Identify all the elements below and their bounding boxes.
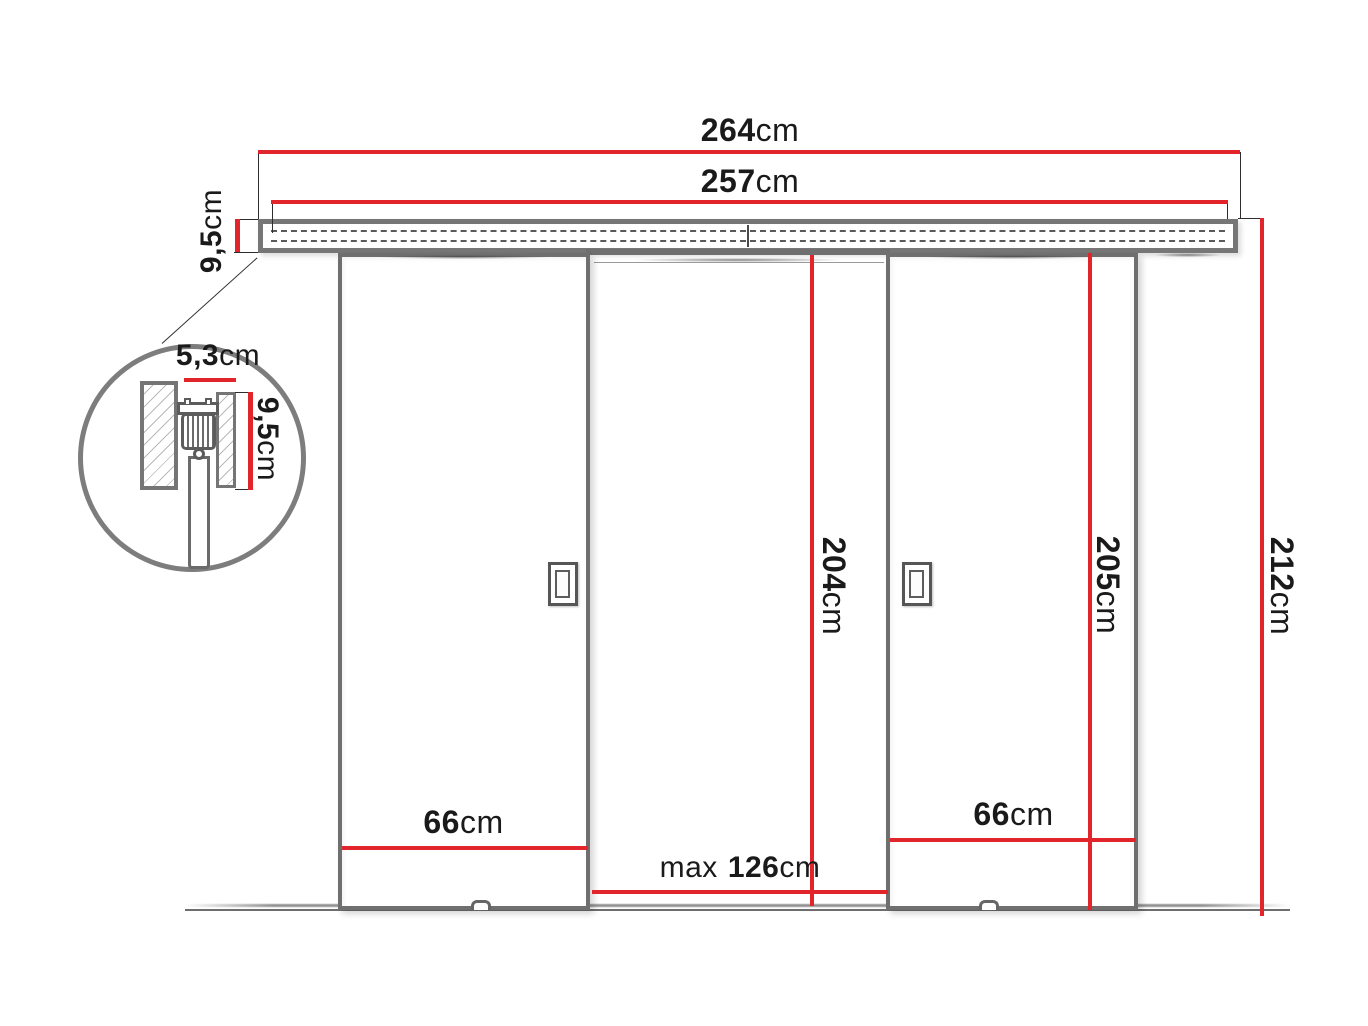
rail-shadow-left-door xyxy=(342,254,585,260)
rail-length-unit: cm xyxy=(756,163,800,199)
extension-line-rail-length-right xyxy=(1227,203,1228,219)
door-height-value: 205 xyxy=(1090,536,1126,591)
total-height-value: 212 xyxy=(1264,537,1300,592)
rail-shadow-right-door xyxy=(890,254,1132,260)
extension-line-detail-height-top xyxy=(235,392,248,393)
dimension-label-rail-height: 9,5cm xyxy=(194,161,230,301)
detail-width-value: 5,3 xyxy=(176,338,219,374)
max-passage-prefix: max xyxy=(660,850,718,886)
dimension-label-detail-height: 9,5cm xyxy=(249,369,283,509)
dimension-line-max-passage-width xyxy=(592,890,888,894)
right-door-handle xyxy=(902,562,932,606)
right-door-handle-recess xyxy=(909,570,924,598)
roller-bracket-notch-right xyxy=(205,398,212,404)
passage-height-value: 204 xyxy=(816,537,852,592)
dimension-label-left-door-width: 66cm xyxy=(391,804,536,840)
dimension-line-total-width xyxy=(258,150,1240,154)
dimension-label-total-height: 212cm xyxy=(1264,511,1300,661)
rail-length-value: 257 xyxy=(701,163,756,199)
rail-shadow-opening xyxy=(592,257,884,263)
dimension-line-passage-height xyxy=(810,255,814,906)
rail-center-tick xyxy=(747,225,749,247)
max-passage-unit: cm xyxy=(779,850,820,886)
dimension-label-passage-height: 204cm xyxy=(816,511,852,661)
dimension-label-total-width: 264cm xyxy=(650,112,850,148)
dimension-label-max-passage-width: max126cm xyxy=(592,852,888,886)
rail-height-unit: cm xyxy=(194,189,230,230)
trim-cross-section xyxy=(216,392,236,488)
extension-line-total-width-left xyxy=(258,152,259,219)
sliding-door-dimension-diagram: 264cm 257cm 9,5cm 5,3cm 9,5cm 204cm xyxy=(0,0,1368,1026)
extension-line-rail-height-bottom xyxy=(234,252,258,253)
opening-top-edge xyxy=(586,249,890,255)
total-width-unit: cm xyxy=(756,112,800,148)
dimension-line-detail-width xyxy=(184,378,236,382)
dimension-label-door-height: 205cm xyxy=(1090,510,1126,660)
dimension-line-rail-length xyxy=(271,200,1228,204)
passage-height-unit: cm xyxy=(816,592,852,636)
wall-cross-section xyxy=(140,381,178,490)
detail-height-value: 9,5 xyxy=(249,397,285,440)
dimension-label-rail-length: 257cm xyxy=(650,163,850,199)
right-door-width-value: 66 xyxy=(973,796,1010,832)
left-door-width-value: 66 xyxy=(423,804,460,840)
dimension-line-rail-height xyxy=(235,219,240,252)
left-door-handle-recess xyxy=(555,570,570,598)
extension-line-rail-length-left xyxy=(272,203,273,233)
extension-line-total-height-top xyxy=(1238,218,1262,219)
rail-height-value: 9,5 xyxy=(194,230,230,273)
dimension-line-right-door-width xyxy=(890,838,1136,842)
door-height-unit: cm xyxy=(1090,591,1126,635)
right-door-width-unit: cm xyxy=(1010,796,1054,832)
rail-shadow-right-end xyxy=(1140,252,1235,258)
dimension-label-right-door-width: 66cm xyxy=(941,796,1086,832)
total-width-value: 264 xyxy=(701,112,756,148)
left-door-width-unit: cm xyxy=(460,804,504,840)
roller-axle xyxy=(193,448,205,460)
roller-bracket-notch-left xyxy=(184,398,191,404)
max-passage-value: 126 xyxy=(728,850,780,886)
roller-wheel xyxy=(181,413,216,450)
top-rail xyxy=(258,219,1238,253)
detail-height-unit: cm xyxy=(249,440,285,481)
right-door-floor-guide xyxy=(979,900,999,910)
left-door-floor-guide xyxy=(471,900,491,910)
dimension-line-left-door-width xyxy=(342,846,588,850)
left-door-handle xyxy=(548,562,578,606)
door-edge-cross-section xyxy=(188,456,210,569)
total-height-unit: cm xyxy=(1264,592,1300,636)
extension-line-total-width-right xyxy=(1240,152,1241,218)
